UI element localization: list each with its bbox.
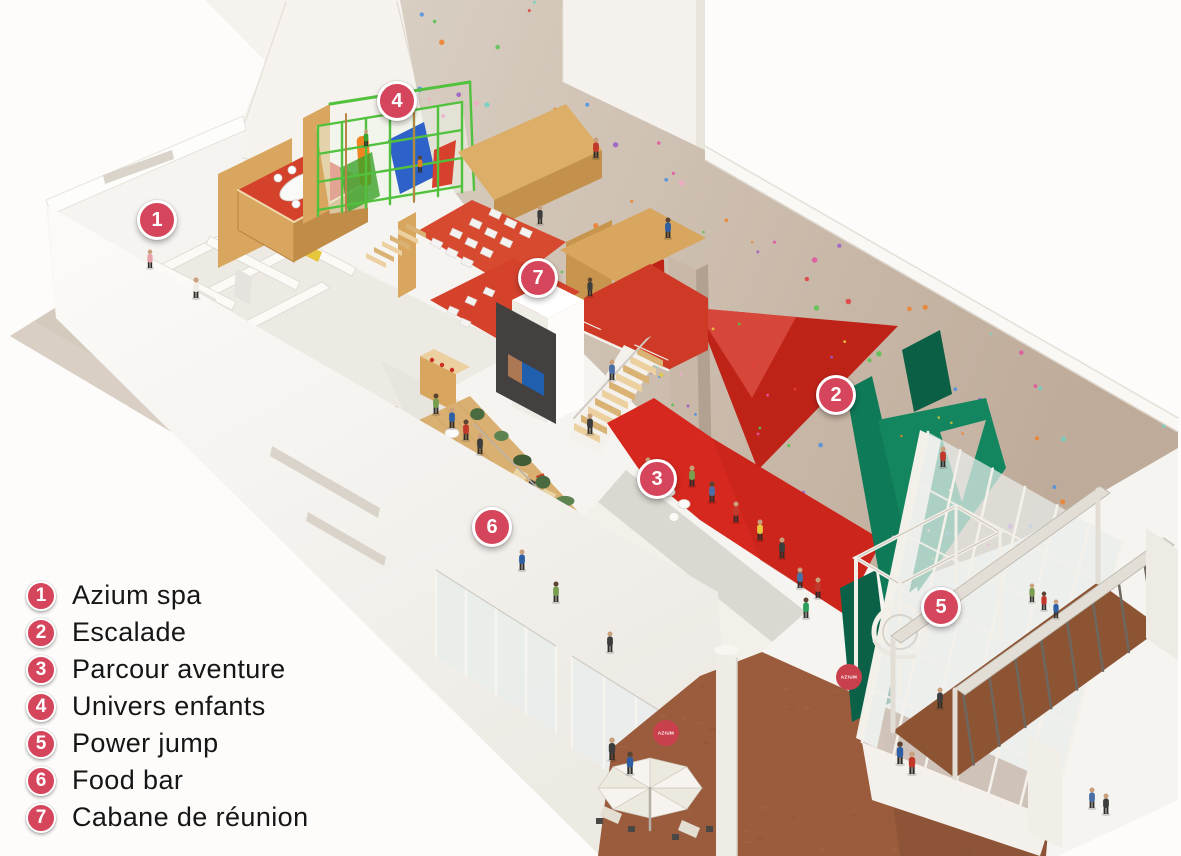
- legend-item-label: Power jump: [72, 728, 219, 759]
- legend-number-badge: 2: [26, 618, 56, 648]
- legend-item-label: Parcour aventure: [72, 654, 286, 685]
- legend-number-badge: 4: [26, 692, 56, 722]
- legend: 1 Azium spa 2 Escalade 3 Parcour aventur…: [26, 577, 309, 836]
- marker-3[interactable]: 3: [637, 459, 677, 499]
- legend-item-7: 7 Cabane de réunion: [26, 799, 309, 836]
- legend-item-label: Azium spa: [72, 580, 202, 611]
- legend-item-4: 4 Univers enfants: [26, 688, 309, 725]
- legend-number-badge: 5: [26, 729, 56, 759]
- legend-item-5: 5 Power jump: [26, 725, 309, 762]
- azium-cutaway-screenshot: AZIUMAZIUM 1234567 1 Azium spa 2 Escalad…: [0, 0, 1181, 856]
- legend-item-6: 6 Food bar: [26, 762, 309, 799]
- svg-text:AZIUM: AZIUM: [841, 675, 858, 680]
- legend-number-badge: 6: [26, 766, 56, 796]
- legend-item-3: 3 Parcour aventure: [26, 651, 309, 688]
- legend-item-2: 2 Escalade: [26, 614, 309, 651]
- legend-number-badge: 1: [26, 581, 56, 611]
- legend-item-label: Cabane de réunion: [72, 802, 309, 833]
- marker-5[interactable]: 5: [921, 587, 961, 627]
- legend-number-badge: 7: [26, 803, 56, 833]
- azium-logo: AZIUM: [653, 720, 679, 746]
- azium-logo: AZIUM: [836, 664, 862, 690]
- svg-text:AZIUM: AZIUM: [658, 731, 675, 736]
- marker-6[interactable]: 6: [472, 507, 512, 547]
- legend-item-label: Food bar: [72, 765, 183, 796]
- legend-item-label: Univers enfants: [72, 691, 266, 722]
- marker-4[interactable]: 4: [377, 81, 417, 121]
- legend-number-badge: 3: [26, 655, 56, 685]
- marker-1[interactable]: 1: [137, 200, 177, 240]
- marker-2[interactable]: 2: [816, 375, 856, 415]
- marker-7[interactable]: 7: [518, 258, 558, 298]
- legend-item-1: 1 Azium spa: [26, 577, 309, 614]
- legend-item-label: Escalade: [72, 617, 186, 648]
